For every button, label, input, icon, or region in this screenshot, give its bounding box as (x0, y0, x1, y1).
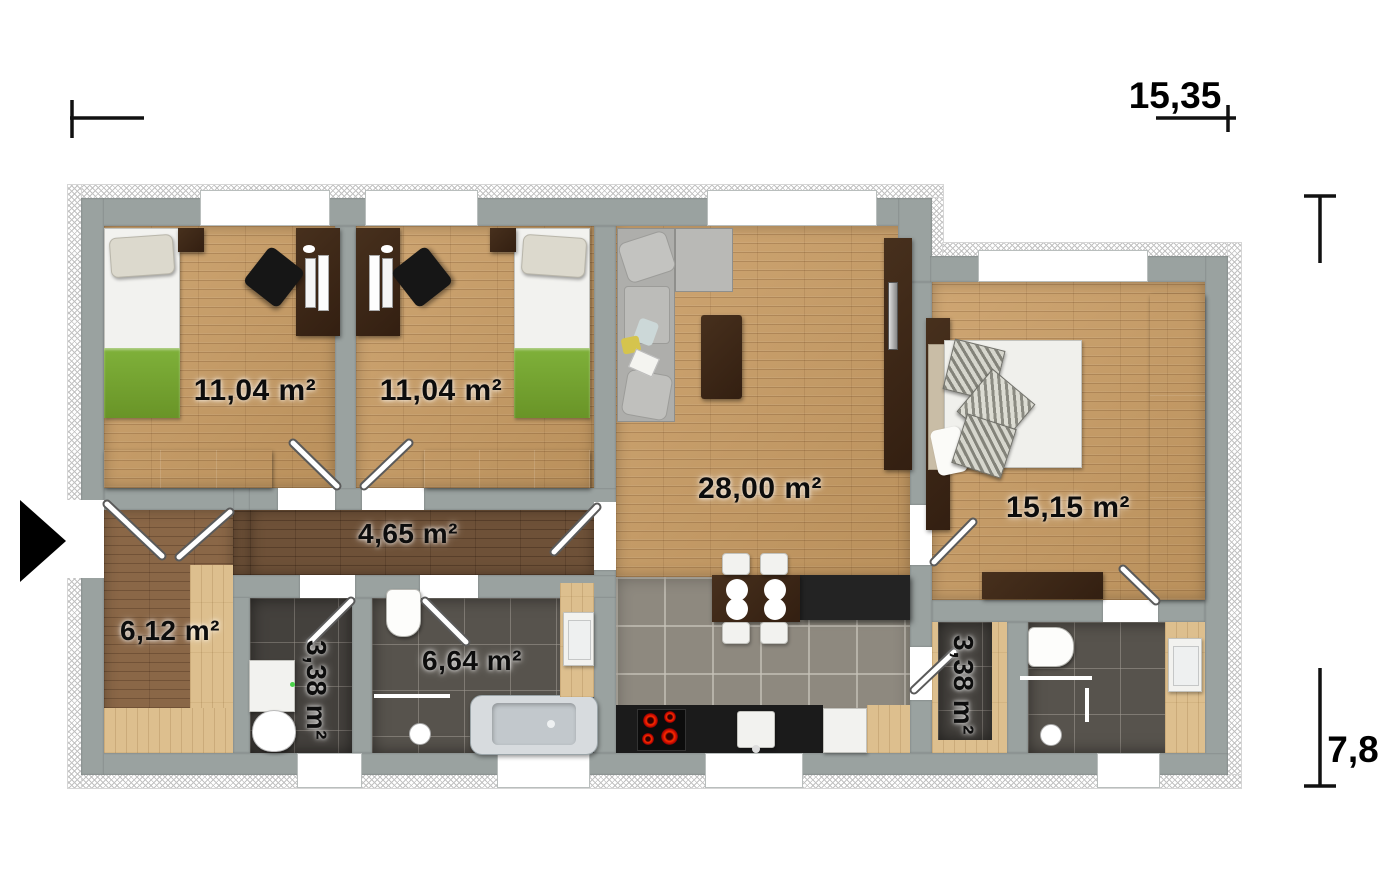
dining-chair-4 (760, 622, 788, 644)
bed-1-headboard-shelf (178, 228, 204, 252)
wall-living-bedroom3-b (910, 565, 932, 647)
dimension-label-height: 7,8 (1327, 729, 1378, 771)
door-opening-wc (300, 575, 355, 598)
dimension-label-width: 15,35 (1129, 75, 1222, 117)
insulation-hatch-east (1228, 243, 1241, 788)
area-label-bedroom-3: 15,15 m² (1006, 491, 1130, 525)
entrance-arrow-icon (20, 500, 66, 582)
bed-1-pillow (109, 234, 176, 278)
wall-west (81, 198, 104, 775)
wall-bottom (81, 753, 1228, 775)
hall-doorway-floor (233, 510, 250, 575)
door-opening-bedroom1 (278, 488, 335, 510)
area-label-wc: 3,38 m² (300, 640, 332, 740)
dresser (982, 572, 1103, 599)
coffee-table (701, 315, 742, 399)
door-opening-bathroom (420, 575, 478, 598)
window-bathroom (497, 753, 590, 788)
area-label-bathroom: 6,64 m² (422, 645, 522, 677)
wall-bedrooms-hall-a (104, 488, 278, 510)
bathroom-shelf-line (374, 694, 450, 698)
door-opening-utility (910, 647, 932, 700)
desk-1-keyboard (318, 255, 329, 311)
tv-screen (888, 282, 898, 350)
bed-2-pillow (521, 234, 588, 278)
window-living-room (707, 190, 877, 226)
wall-living-bedroom3-c (910, 700, 932, 753)
window-kitchen (705, 753, 803, 788)
shower-partition-v (1085, 688, 1089, 722)
wall-bedroom2-living (594, 226, 616, 490)
dining-chair-2 (760, 553, 788, 575)
toilet-bathroom-2 (1028, 627, 1074, 667)
sofa-seat-cushion-2 (620, 368, 673, 421)
bed-2-headboard-shelf (490, 228, 516, 252)
wall-utility-bathroom2 (1007, 622, 1028, 753)
wall-bedroom3-wet-a (932, 600, 1103, 622)
wall-wc-bathroom (352, 598, 372, 753)
bed-2-blanket (514, 348, 590, 418)
washing-machine-led (290, 682, 295, 687)
wardrobe-3 (1150, 294, 1205, 600)
shower-partition-h (1020, 676, 1092, 680)
window-bedroom-1 (200, 190, 330, 226)
wall-hall-wet-a (233, 575, 300, 598)
shower-head-bathroom-2 (1040, 724, 1062, 746)
dishwasher (823, 708, 867, 753)
window-bedroom-2 (365, 190, 478, 226)
bathroom-sink-basin (568, 620, 591, 660)
wall-east (1205, 256, 1228, 775)
area-label-utility: 3,38 m² (947, 635, 979, 735)
dining-plate-4 (764, 598, 786, 620)
desk-2-monitor (382, 258, 393, 308)
kitchen-sink (737, 711, 775, 748)
cooktop-burner-1 (643, 713, 658, 728)
kitchen-cabinet-wood (867, 705, 910, 753)
shower-head-bathroom (409, 723, 431, 745)
dining-chair-1 (722, 553, 750, 575)
cooktop-burner-2 (664, 711, 676, 723)
tv-cabinet (884, 238, 912, 470)
dining-plate-3 (726, 598, 748, 620)
window-wc (297, 753, 362, 788)
entry-door-opening (66, 500, 104, 578)
sofa-chaise (675, 228, 733, 292)
wall-bedrooms-hall-b (335, 488, 362, 510)
wardrobe-2 (424, 450, 590, 488)
kitchen-island (800, 575, 910, 620)
insulation-hatch-west (68, 185, 81, 788)
desk-2-keyboard (369, 255, 380, 311)
kitchen-faucet (752, 745, 760, 753)
door-opening-hall-living (594, 502, 616, 570)
floor-plan-canvas: 11,04 m² 11,04 m² 28,00 m² 15,15 m² 4,65… (0, 0, 1400, 875)
bathtub-basin (492, 703, 576, 745)
toilet-wc (252, 710, 296, 752)
wall-bedroom3-wet-b (1158, 600, 1205, 622)
wall-bedrooms-hall-c (424, 488, 616, 510)
entry-hall-mat-row (104, 708, 233, 753)
cooktop-burner-3 (642, 733, 654, 745)
window-bathroom-2 (1097, 753, 1160, 788)
cooktop-burner-4 (661, 728, 678, 745)
door-opening-bedroom2 (362, 488, 424, 510)
dining-chair-3 (722, 622, 750, 644)
area-label-bedroom-1: 11,04 m² (194, 374, 316, 408)
wall-entry-wc (233, 575, 250, 753)
area-label-bedroom-2: 11,04 m² (380, 374, 502, 408)
bed-1-blanket (104, 348, 180, 418)
area-label-hallway: 4,65 m² (358, 518, 458, 550)
bathroom-2-sink-basin (1173, 646, 1199, 686)
dining-table (712, 575, 800, 622)
desk-1-monitor (305, 258, 316, 308)
bathtub-drain (547, 720, 555, 728)
window-bedroom-3 (978, 250, 1148, 282)
washing-machine (249, 660, 295, 712)
wall-hall-wet-c (478, 575, 616, 598)
insulation-hatch-bottom (68, 775, 1241, 788)
desk-2-mouse (381, 245, 393, 253)
desk-1-mouse (303, 245, 315, 253)
wardrobe-1 (104, 450, 272, 488)
area-label-entry-hall: 6,12 m² (120, 615, 220, 647)
wall-entry-pier-a (233, 488, 250, 510)
area-label-living-room: 28,00 m² (698, 472, 822, 506)
door-opening-bathroom2 (1103, 600, 1158, 622)
toilet-bathroom (386, 589, 421, 637)
